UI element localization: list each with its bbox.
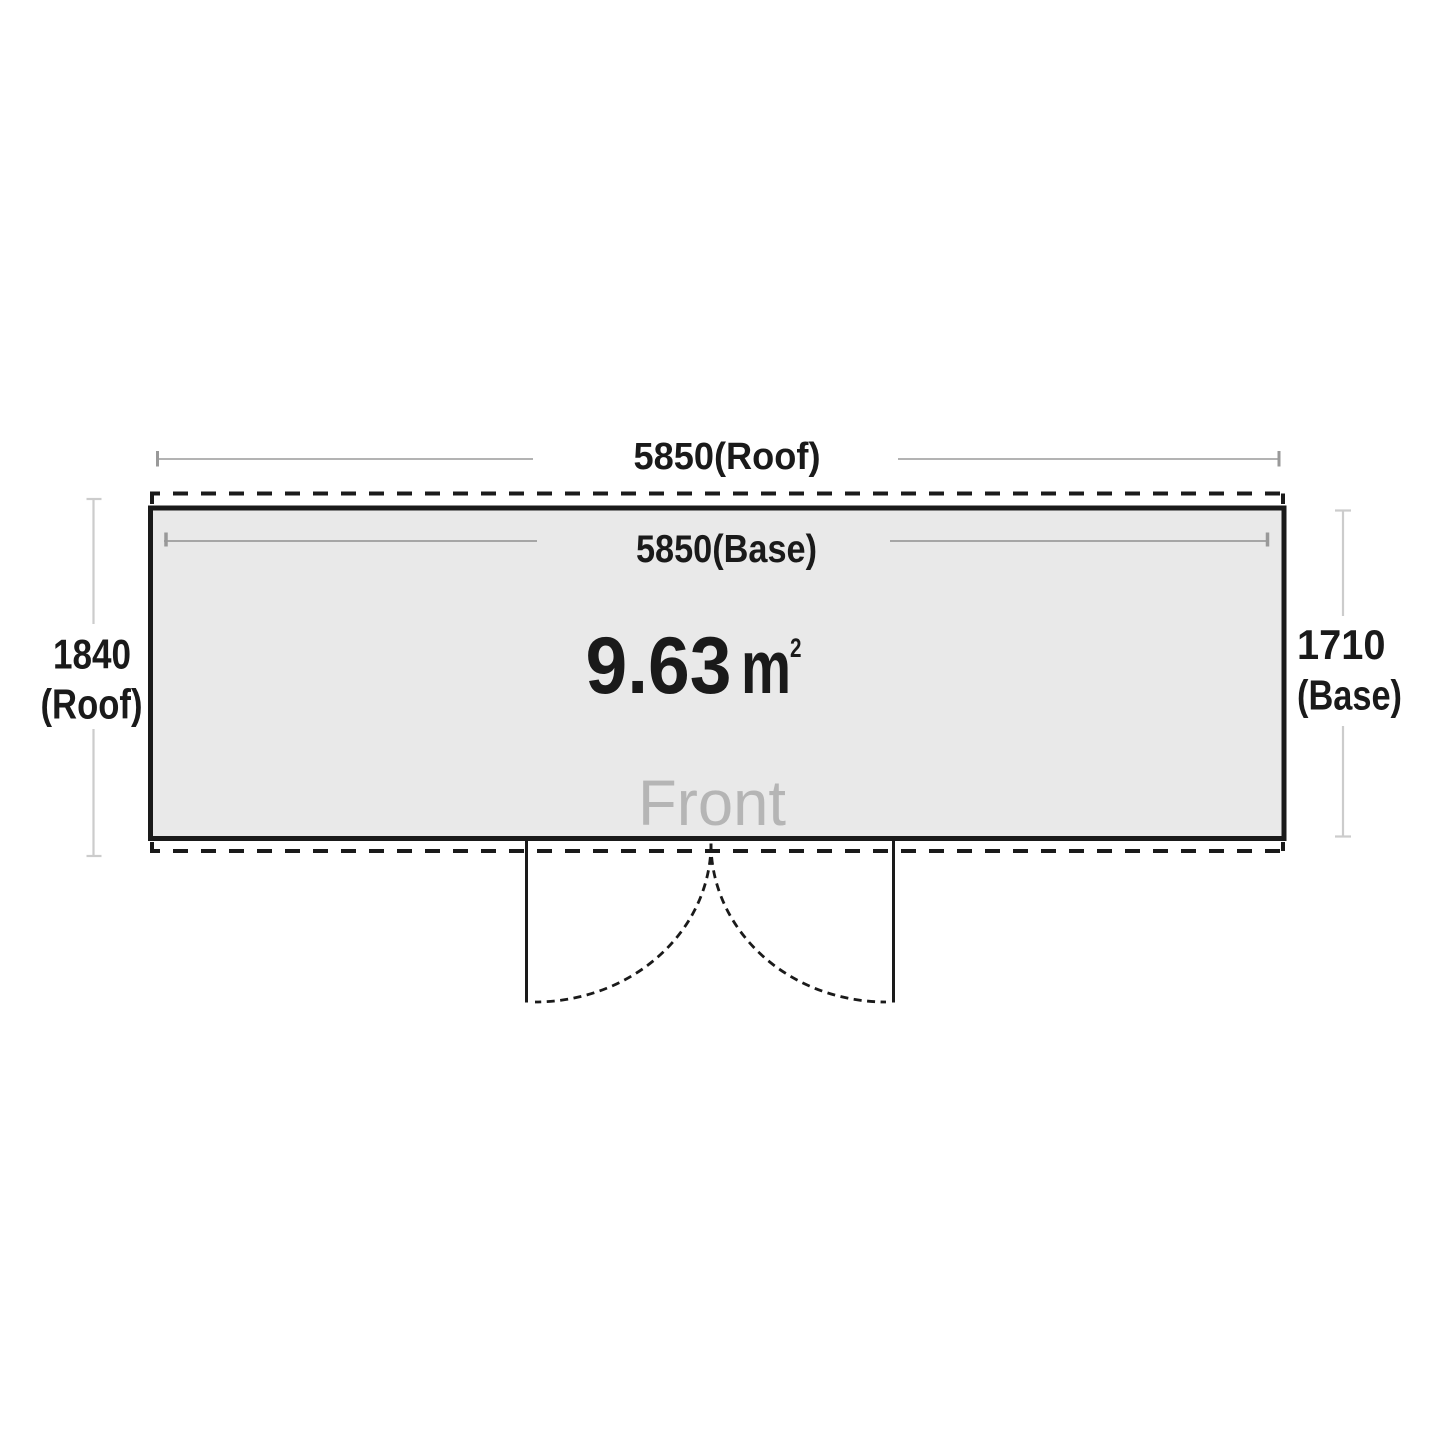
svg-text:(Roof): (Roof) — [41, 681, 143, 728]
svg-text:2: 2 — [790, 633, 802, 663]
svg-text:Front: Front — [638, 767, 786, 839]
svg-text:1710: 1710 — [1297, 621, 1386, 668]
svg-text:m: m — [741, 625, 791, 709]
svg-text:5850(Base): 5850(Base) — [636, 528, 817, 571]
svg-text:(Base): (Base) — [1297, 672, 1402, 719]
svg-text:1840: 1840 — [53, 631, 131, 678]
svg-text:5850(Roof): 5850(Roof) — [634, 436, 821, 478]
svg-text:9.63: 9.63 — [586, 621, 732, 711]
